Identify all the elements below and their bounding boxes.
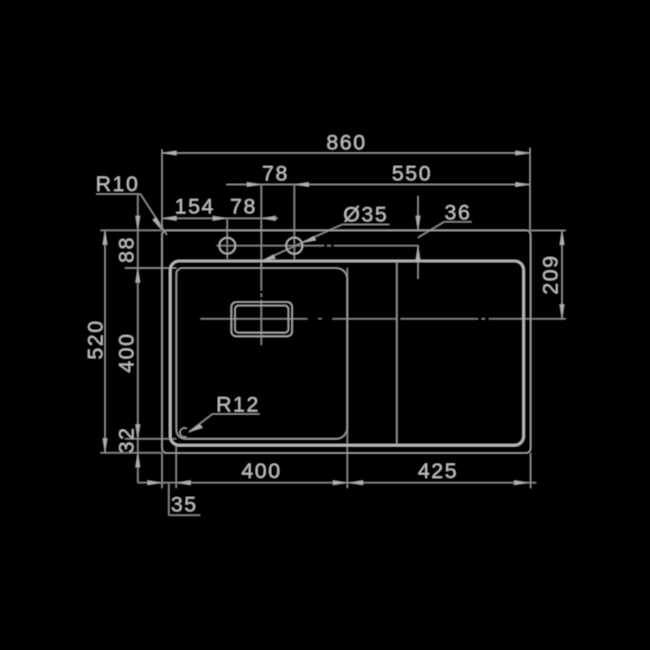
svg-text:400: 400 — [115, 332, 139, 372]
svg-text:R10: R10 — [96, 172, 140, 196]
svg-text:32: 32 — [115, 426, 139, 453]
svg-text:R12: R12 — [216, 392, 260, 416]
svg-text:88: 88 — [115, 236, 139, 263]
svg-text:35: 35 — [171, 493, 198, 517]
svg-text:520: 520 — [84, 319, 108, 359]
svg-text:78: 78 — [262, 162, 289, 186]
svg-text:550: 550 — [392, 162, 432, 186]
svg-text:Ø35: Ø35 — [343, 202, 388, 226]
svg-text:36: 36 — [445, 200, 472, 224]
svg-text:425: 425 — [418, 459, 458, 483]
svg-text:209: 209 — [539, 254, 563, 294]
svg-text:154: 154 — [175, 194, 215, 218]
svg-text:860: 860 — [326, 131, 366, 155]
svg-text:78: 78 — [230, 194, 257, 218]
svg-text:400: 400 — [241, 459, 281, 483]
